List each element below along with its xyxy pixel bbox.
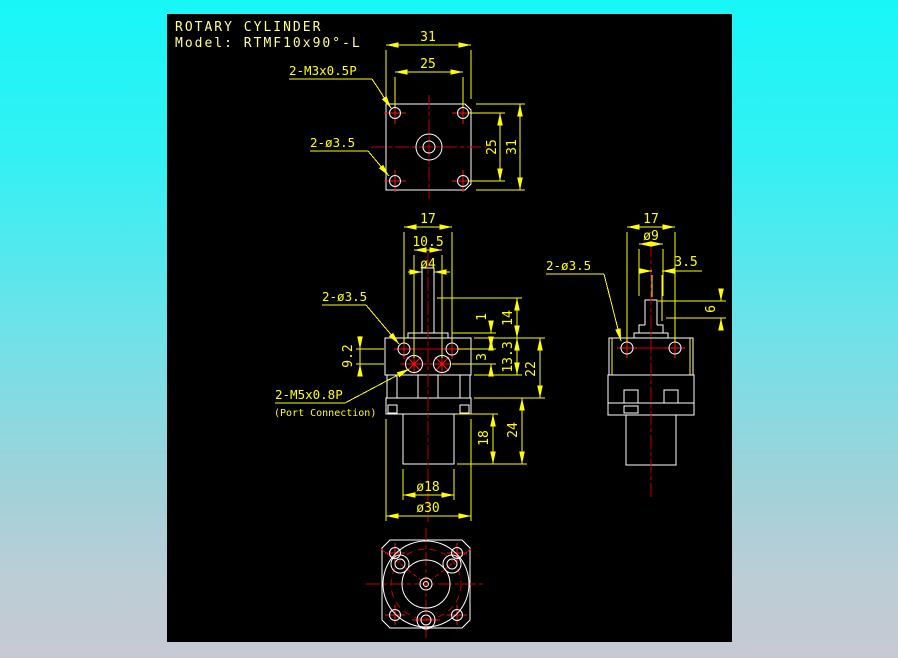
- dim-front-hole-spacing: 17: [420, 212, 436, 227]
- dim-front-shaft-dia: ø4: [420, 257, 436, 272]
- label-through-holes-top: 2-ø3.5: [310, 135, 355, 150]
- bottom-view: [366, 528, 486, 640]
- cad-drawing: ROTARY CYLINDER Model: RTMF10x90°-L: [167, 14, 732, 642]
- dim-front-lower-height: 24: [506, 422, 521, 438]
- dim-front-port-spacing: 10.5: [412, 235, 443, 250]
- dim-front-body-height: 13.3: [501, 341, 516, 372]
- label-ports: 2-M5x0.8P: [275, 387, 343, 402]
- label-ports-note: (Port Connection): [274, 408, 376, 419]
- dim-side-boss-dia: ø9: [643, 229, 659, 244]
- dim-front-shaft-height: 14: [501, 310, 516, 326]
- dim-side-hole-spacing: 17: [643, 212, 659, 227]
- dim-top-height-outer: 31: [505, 139, 520, 155]
- dim-front-cyl-height: 18: [477, 430, 492, 446]
- dim-front-row-gap: 3: [475, 353, 490, 361]
- top-view: 31 25 25 31 2-M3x0.5P 2-ø3.5: [289, 30, 525, 199]
- title-line2: Model: RTMF10x90°-L: [175, 36, 362, 51]
- title-line1: ROTARY CYLINDER: [175, 20, 322, 35]
- drawing-title: ROTARY CYLINDER Model: RTMF10x90°-L: [175, 20, 362, 51]
- dim-top-width-inner: 25: [420, 57, 436, 72]
- dim-side-offset: 3.5: [674, 255, 697, 270]
- dim-top-width-outer: 31: [420, 30, 436, 45]
- desktop-background: ROTARY CYLINDER Model: RTMF10x90°-L: [0, 0, 898, 658]
- dim-top-height-inner: 25: [485, 139, 500, 155]
- cad-canvas[interactable]: ROTARY CYLINDER Model: RTMF10x90°-L: [167, 14, 732, 642]
- label-thread-holes: 2-M3x0.5P: [289, 63, 357, 78]
- label-through-holes-side: 2-ø3.5: [546, 258, 591, 273]
- dim-front-flange-dia: ø30: [416, 501, 439, 516]
- side-view: 17 ø9 3.5 6 2-ø3.5: [546, 212, 726, 497]
- label-through-holes-front: 2-ø3.5: [322, 289, 367, 304]
- dim-side-boss-height: 6: [704, 305, 719, 313]
- dim-front-upper-height: 22: [524, 361, 539, 377]
- front-view: 17 10.5 ø4 2-ø3.5 9.2 2-M5x0.8P (Port Co…: [274, 212, 545, 522]
- dim-front-port-offset: 9.2: [341, 344, 356, 367]
- dim-front-cyl-dia: ø18: [416, 480, 439, 495]
- dim-front-plate-thickness: 1: [475, 313, 490, 321]
